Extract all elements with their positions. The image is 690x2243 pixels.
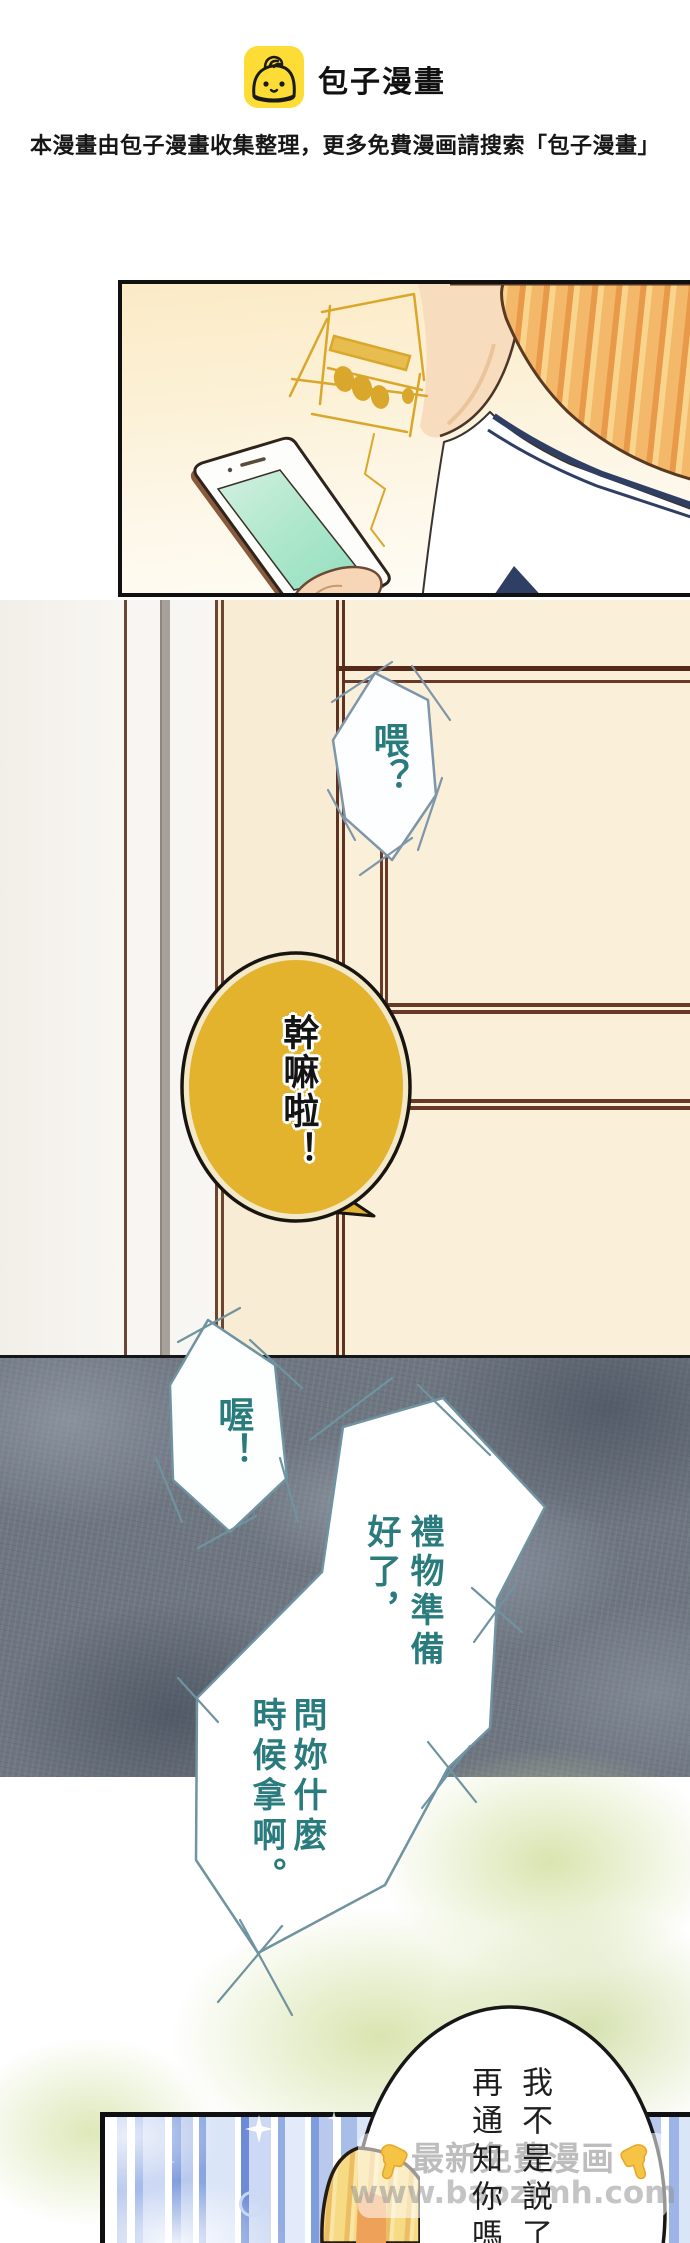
wall-strip [0,600,124,1355]
pointing-hand-down-icon [376,2143,408,2181]
circle-sparkle-icon [239,2191,265,2217]
speech-text-hello: 喂？ [367,722,408,832]
site-header: 包子漫畫 [0,46,690,112]
phone-panel-illustration [122,284,690,597]
collection-notice: 本漫畫由包子漫畫收集整理，更多免費漫画請搜索「包子漫畫」 [0,128,690,160]
sparkle-icon [165,2157,175,2167]
sparkle-icon [327,2111,341,2125]
speech-bubble-gift [160,1360,580,2080]
speech-text-gift-a: 禮物準備 好了， [359,1514,445,1684]
sparkle-icon [245,2115,273,2143]
manga-reader-page: 包子漫畫 本漫畫由包子漫畫收集整理，更多免費漫画請搜索「包子漫畫」 [0,0,690,2243]
speech-text-reply: 我不是説了 再通知你嗎 [459,2066,559,2243]
pointing-hand-down-icon [620,2143,652,2181]
bun-logo-icon [244,46,304,112]
speech-text-annoyed: 幹嘛啦！ [277,1014,318,1184]
comic-panel-phone [118,280,690,597]
site-title: 包子漫畫 [318,57,446,101]
speech-text-gift-b: 問妳什麼 時候拿啊。 [245,1697,327,1902]
